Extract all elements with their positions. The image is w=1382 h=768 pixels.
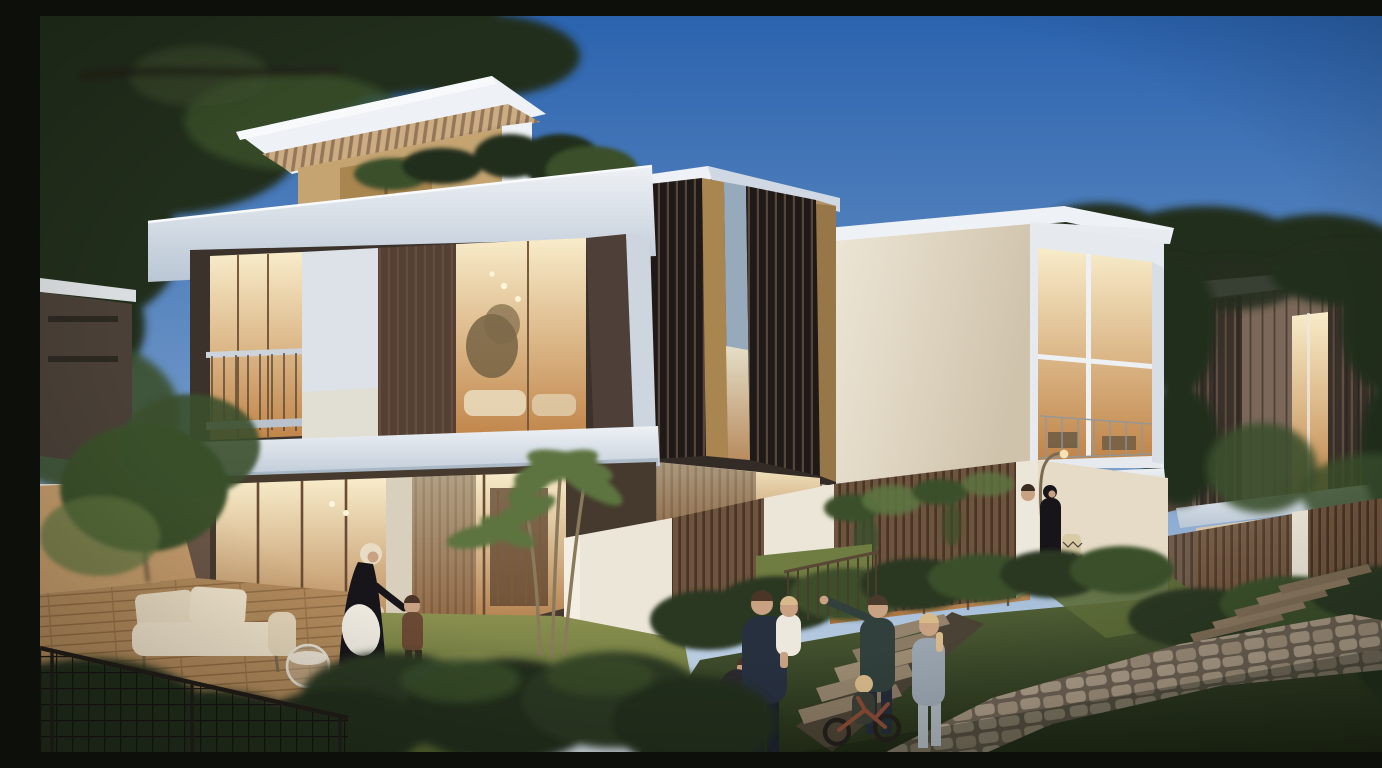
villa-render-scene: Dusk 3D rendering of a modern villa comm… xyxy=(40,16,1382,752)
scene-canvas xyxy=(40,16,1382,752)
vignette xyxy=(40,16,1382,752)
